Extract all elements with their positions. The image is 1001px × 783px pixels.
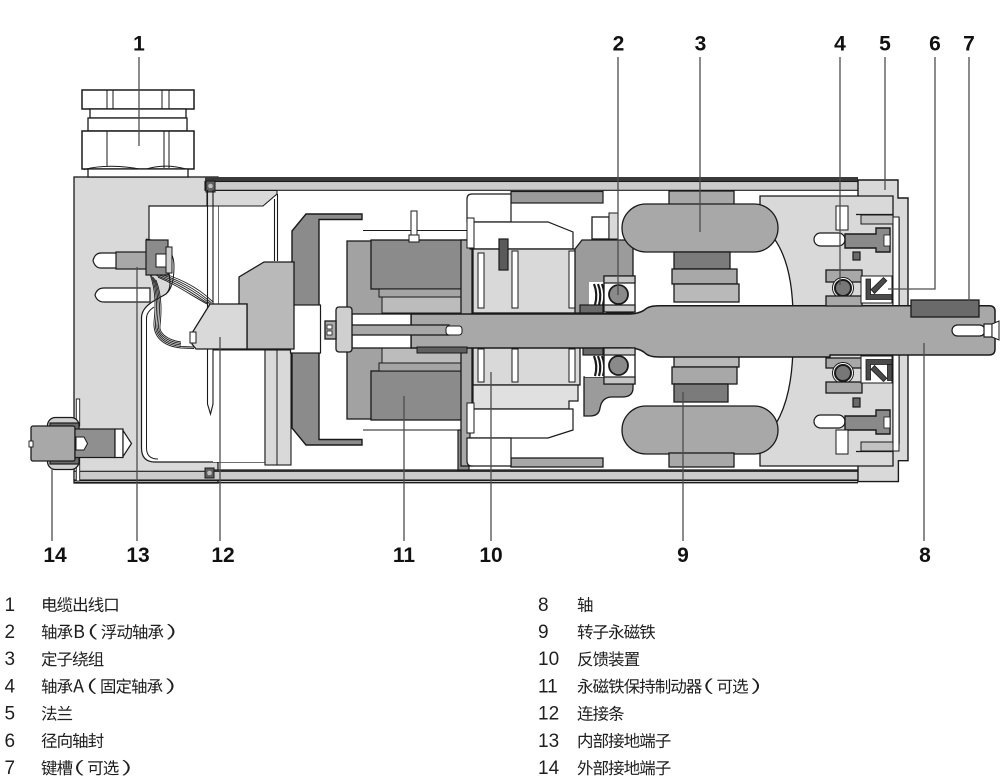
svg-text:12: 12 (211, 544, 234, 567)
svg-text:10: 10 (538, 649, 559, 670)
svg-text:8: 8 (538, 595, 549, 616)
svg-text:8: 8 (919, 544, 931, 567)
svg-text:9: 9 (538, 622, 549, 643)
svg-text:1: 1 (5, 595, 16, 616)
svg-text:13: 13 (126, 544, 149, 567)
svg-text:9: 9 (677, 544, 689, 567)
svg-text:1: 1 (133, 33, 145, 56)
svg-text:12: 12 (538, 704, 559, 725)
svg-text:10: 10 (479, 544, 502, 567)
svg-text:2: 2 (5, 622, 16, 643)
svg-text:11: 11 (393, 544, 416, 567)
svg-text:2: 2 (613, 33, 625, 56)
svg-text:6: 6 (929, 33, 941, 56)
svg-text:11: 11 (538, 676, 558, 697)
svg-text:4: 4 (5, 676, 16, 697)
svg-text:6: 6 (5, 731, 16, 752)
svg-text:7: 7 (963, 33, 975, 56)
svg-text:3: 3 (5, 649, 16, 670)
svg-text:7: 7 (5, 758, 16, 779)
svg-text:5: 5 (5, 704, 16, 725)
svg-text:14: 14 (538, 758, 560, 779)
svg-text:5: 5 (879, 33, 891, 56)
svg-text:14: 14 (43, 544, 67, 567)
svg-text:3: 3 (695, 33, 707, 56)
svg-text:13: 13 (538, 731, 559, 752)
svg-text:4: 4 (834, 33, 846, 56)
